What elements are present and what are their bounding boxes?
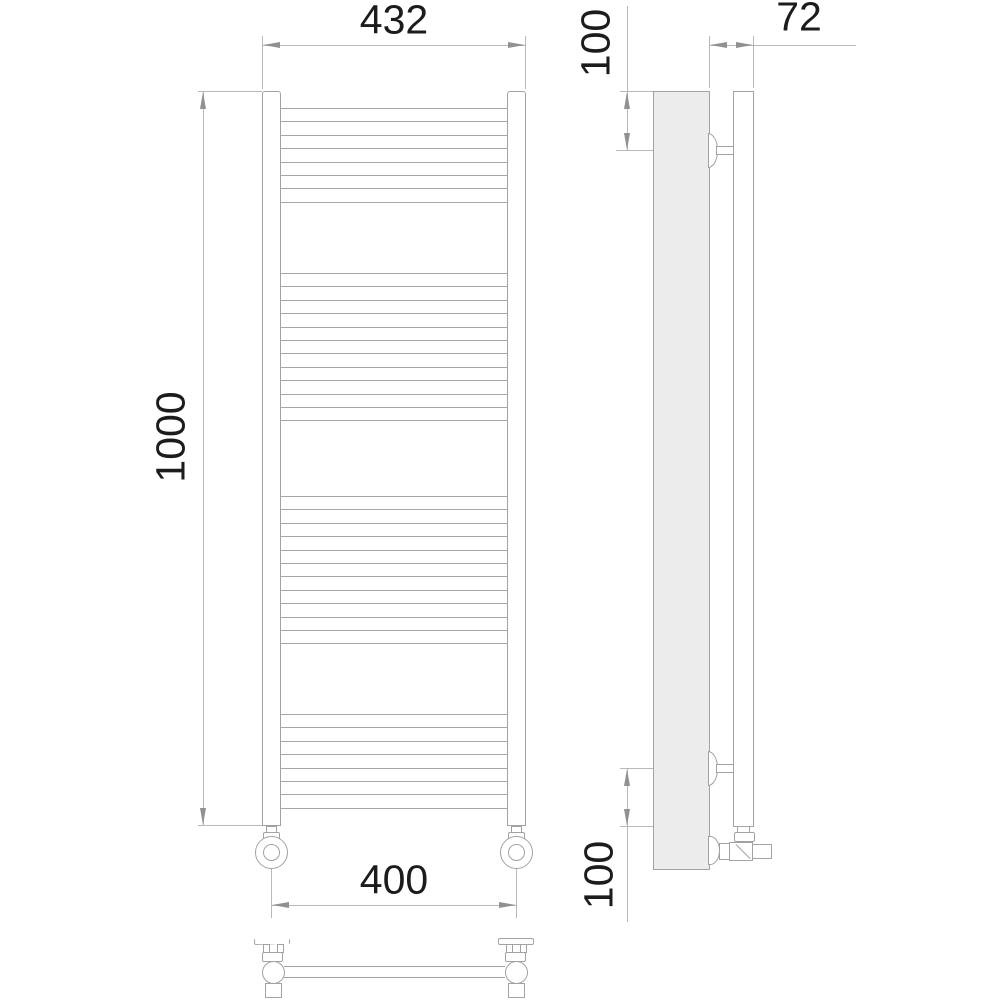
rung-line — [281, 808, 507, 809]
dim-432-label: 432 — [360, 0, 428, 41]
front-left-post — [262, 91, 281, 826]
dim-100-top-arrow-up — [624, 92, 630, 109]
rung-line — [281, 407, 507, 408]
rung-line — [281, 550, 507, 551]
rung-line — [281, 576, 507, 577]
rung-line — [281, 523, 507, 524]
rung-line — [281, 367, 507, 368]
dim-100-bottom-arrow-up — [624, 769, 630, 786]
dim-432-arrow-left — [263, 42, 280, 48]
side-valve-outlet — [752, 844, 772, 859]
rung-line — [281, 781, 507, 782]
rung-line — [281, 630, 507, 631]
dim-1000-ext-top — [198, 91, 262, 92]
rung-line — [281, 300, 507, 301]
rung-line — [281, 380, 507, 381]
dim-1000-label: 1000 — [151, 391, 192, 482]
dim-100-bottom-ext-b — [620, 826, 653, 827]
bottom-left-foot — [265, 983, 282, 998]
rung-line — [281, 754, 507, 755]
rung-line — [281, 121, 507, 122]
rung-line — [281, 590, 507, 591]
rung-line — [281, 509, 507, 510]
side-post-tube — [733, 91, 754, 827]
rung-line — [281, 603, 507, 604]
dim-400-label: 400 — [360, 860, 428, 901]
dim-72-arrow-right — [736, 42, 753, 48]
dim-1000-arrow-top — [200, 92, 206, 109]
dim-1000-line — [203, 91, 204, 825]
dim-72-label: 72 — [776, 0, 822, 38]
dim-400-ext-left — [271, 869, 272, 918]
rung-line — [281, 162, 507, 163]
rung-line — [281, 794, 507, 795]
dim-432-line — [262, 45, 526, 46]
front-left-valve-cap — [263, 844, 280, 861]
dim-400-ext-right — [516, 869, 517, 918]
dim-100-bottom-arrow-down — [624, 809, 630, 826]
bottom-right-foot — [508, 983, 525, 998]
rung-line — [281, 394, 507, 395]
front-right-post — [507, 91, 526, 826]
dim-100-bottom-label: 100 — [579, 841, 620, 909]
dim-100-top-line — [627, 6, 628, 150]
dim-100-bottom-line — [627, 768, 628, 922]
rung-line — [281, 135, 507, 136]
bottom-left-valve-body — [262, 961, 285, 984]
dim-100-top-ext-b — [616, 150, 653, 151]
rung-line — [281, 496, 507, 497]
side-valve-nut — [734, 832, 755, 842]
dim-1000-arrow-bottom — [200, 808, 206, 825]
dim-400-line — [271, 905, 517, 906]
rung-line — [281, 340, 507, 341]
dim-432-ext-right — [525, 36, 526, 89]
bottom-right-handle — [498, 938, 534, 945]
rung-line — [281, 563, 507, 564]
rung-line — [281, 617, 507, 618]
rung-line — [281, 420, 507, 421]
rung-line — [281, 327, 507, 328]
rung-line — [281, 714, 507, 715]
bottom-right-valve-body — [505, 961, 528, 984]
bottom-view-tube — [284, 966, 505, 978]
bottom-bracket-stem — [716, 764, 734, 773]
rung-line — [281, 643, 507, 644]
rung-line — [281, 108, 507, 109]
rung-line — [281, 536, 507, 537]
technical-drawing: 432 1000 400 72 100 — [0, 0, 1000, 1000]
dim-72-ext-right — [753, 36, 754, 88]
dim-400-arrow-left — [272, 902, 289, 908]
rung-line — [281, 727, 507, 728]
rung-line — [281, 188, 507, 189]
dim-432-arrow-right — [508, 42, 525, 48]
rung-line — [281, 273, 507, 274]
rung-line — [281, 353, 507, 354]
dim-400-arrow-right — [499, 902, 516, 908]
top-bracket-stem — [716, 146, 734, 155]
rung-line — [281, 313, 507, 314]
bottom-left-handle — [254, 938, 290, 945]
dim-72-arrow-left — [710, 42, 727, 48]
dim-1000-ext-bottom — [198, 825, 262, 826]
wall-panel — [653, 91, 710, 870]
front-right-valve-cap — [508, 844, 525, 861]
rung-line — [281, 286, 507, 287]
dim-100-top-label: 100 — [576, 9, 617, 77]
rung-line — [281, 175, 507, 176]
rung-line — [281, 768, 507, 769]
rung-line — [281, 148, 507, 149]
dim-100-top-arrow-down — [624, 133, 630, 150]
rung-line — [281, 202, 507, 203]
rung-line — [281, 741, 507, 742]
dim-72-line — [709, 45, 856, 46]
